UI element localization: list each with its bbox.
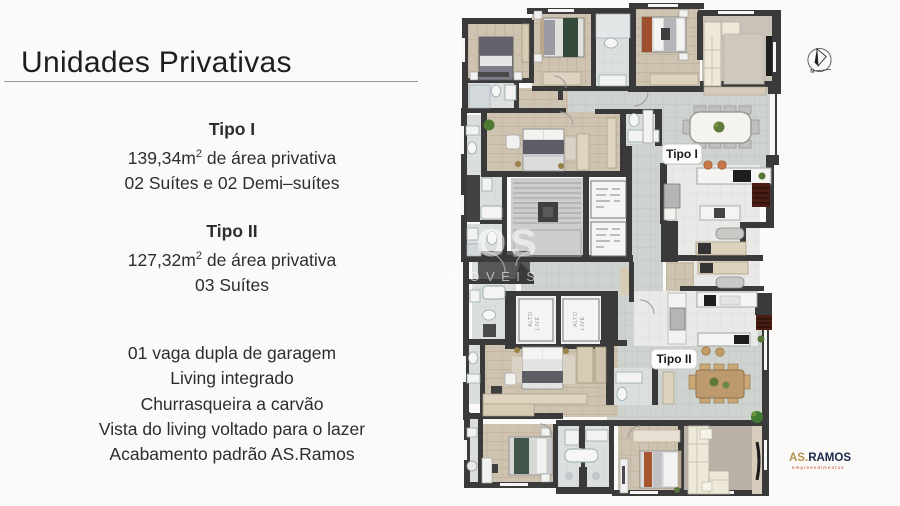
svg-text:ALTO: ALTO: [528, 311, 534, 327]
svg-text:N: N: [810, 69, 814, 75]
svg-text:MÓVEIS: MÓVEIS: [452, 269, 542, 284]
svg-text:os: os: [476, 211, 540, 267]
svg-text:LIVE: LIVE: [535, 316, 541, 330]
svg-text:Tipo II: Tipo II: [656, 352, 691, 366]
svg-text:Tipo I: Tipo I: [666, 147, 698, 161]
svg-text:LIVE: LIVE: [580, 316, 586, 330]
svg-text:ALTO: ALTO: [573, 311, 579, 327]
